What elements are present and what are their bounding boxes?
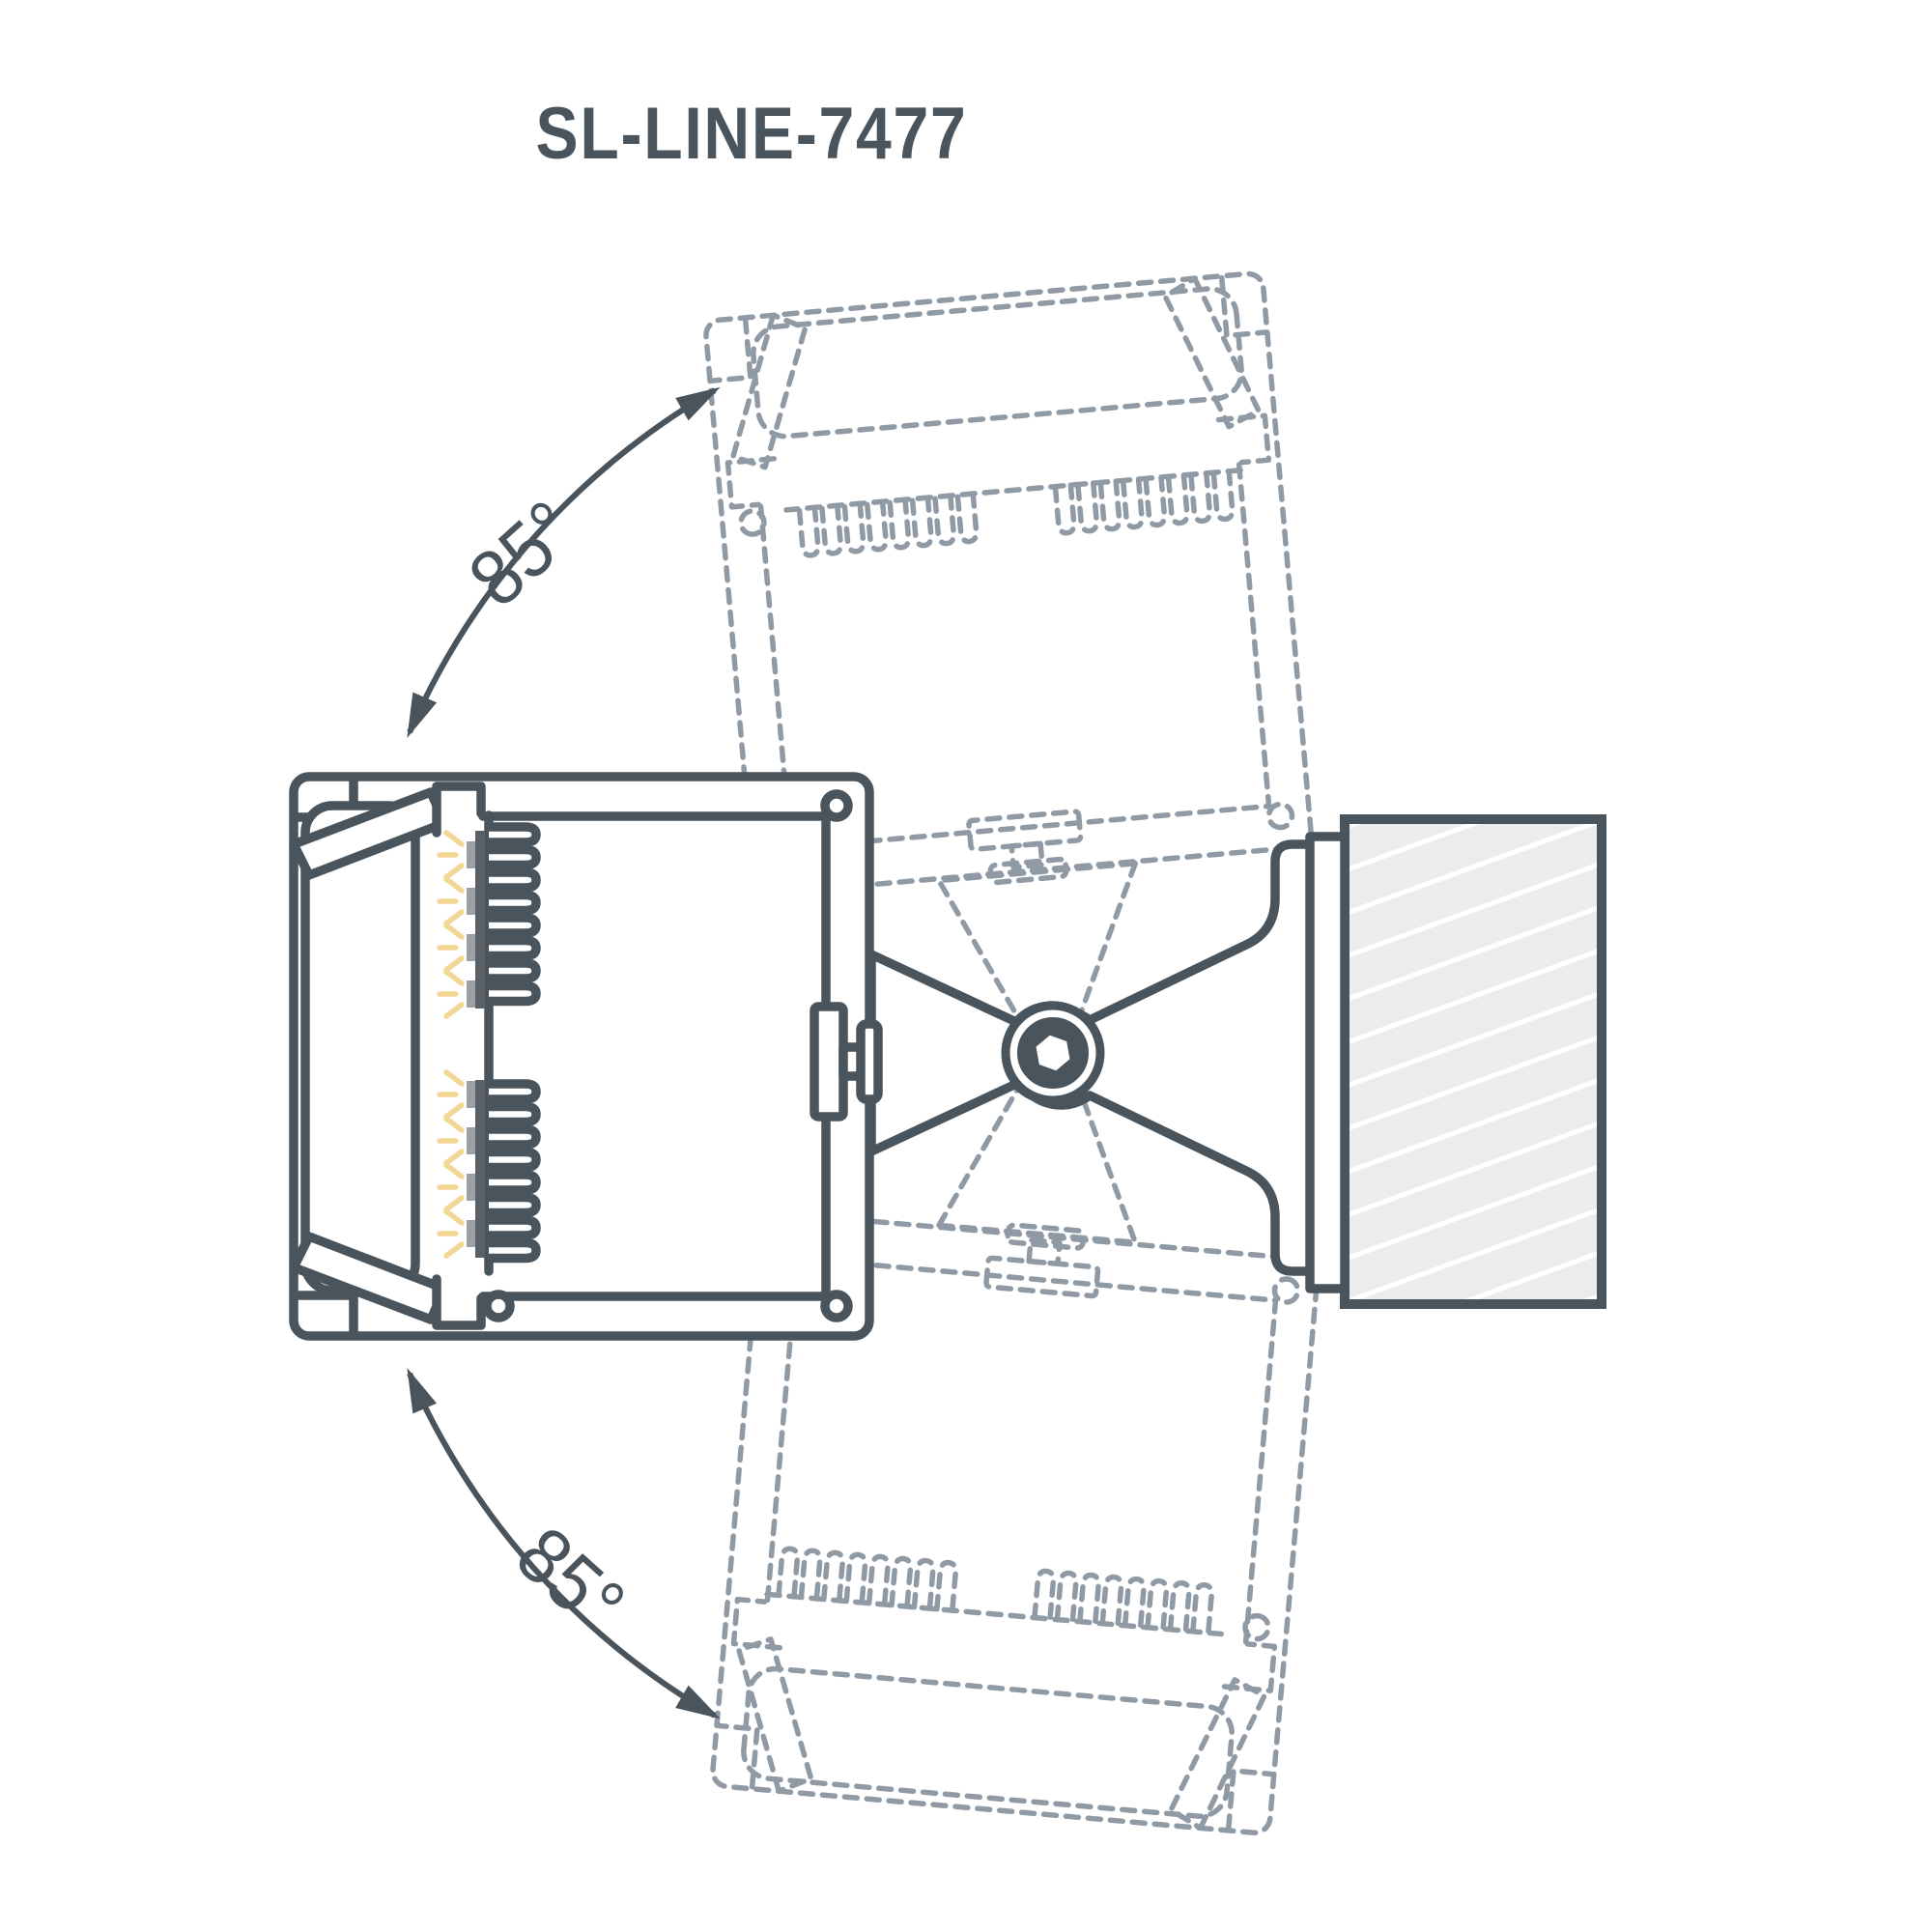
wall-section xyxy=(1345,819,1602,1304)
angle-label-bottom: 85° xyxy=(500,1510,641,1649)
led-chip xyxy=(467,1174,475,1201)
led-board-lower xyxy=(475,1080,485,1258)
page-title: SL-LINE-7477 xyxy=(535,94,967,175)
led-chip xyxy=(467,1127,475,1154)
angle-label-top: 85° xyxy=(452,484,593,623)
pivot-joint xyxy=(1006,1006,1100,1100)
led-chip xyxy=(467,888,475,915)
led-chip xyxy=(467,1220,475,1247)
wall-hatch xyxy=(1345,819,1602,1304)
led-board-upper xyxy=(475,831,485,1009)
main-fixture-cross-section xyxy=(294,777,1099,1336)
led-chip xyxy=(467,934,475,961)
mounting-plate xyxy=(1310,837,1345,1289)
luminaire-rotation-diagram: 85° 85° SL-LINE-7477 xyxy=(0,0,1932,1932)
led-chip xyxy=(467,1081,475,1108)
led-chip xyxy=(467,980,475,1008)
led-chip xyxy=(467,841,475,868)
